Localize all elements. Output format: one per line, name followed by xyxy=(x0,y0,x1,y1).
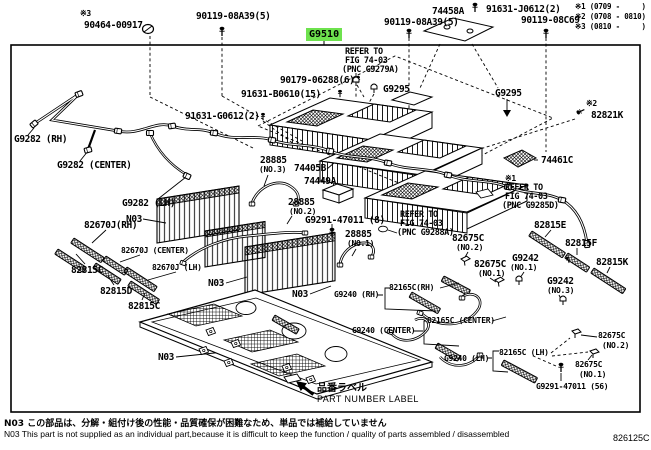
part-82815f[interactable]: 82815F xyxy=(565,238,597,249)
ref2-mark: ※2 xyxy=(586,99,597,108)
note-n03-4: N03 xyxy=(158,352,174,363)
part-90179-06288[interactable]: 90179-06288(6) xyxy=(280,75,354,86)
note-n03-1: N03 xyxy=(126,214,142,225)
part-g9291-47011-56[interactable]: G9291-47011 (56) xyxy=(536,382,608,391)
part-82670j-center[interactable]: 82670J (CENTER) xyxy=(121,246,189,255)
ref3-mark-top: ※3 xyxy=(80,9,91,18)
refer-g9285d-3: (PNC G9285D) xyxy=(502,201,559,211)
part-82675c-no2-lower[interactable]: 82675C xyxy=(598,331,625,340)
part-74458a[interactable]: 74458A xyxy=(432,6,464,17)
part-91631-j0612[interactable]: 91631-J0612(2) xyxy=(486,4,560,15)
callout-layer: ※390464-0091790119-08A39(5)74458A91631-J… xyxy=(0,0,651,450)
part-82815c-2[interactable]: 82815C xyxy=(128,301,160,312)
part-82815c-1[interactable]: 82815C xyxy=(71,265,103,276)
part-g9295-left[interactable]: G9295 xyxy=(383,84,410,95)
part-g9240-center[interactable]: G9240 (CENTER) xyxy=(352,326,415,335)
part-74449a[interactable]: 74449A xyxy=(304,176,336,187)
part-g9242-no1-sub[interactable]: (NO.1) xyxy=(510,263,537,272)
part-82165c-center[interactable]: 82165C (CENTER) xyxy=(427,316,495,325)
note-n03-2: N03 xyxy=(208,278,224,289)
part-91631-g0612[interactable]: 91631-G0612(2) xyxy=(185,111,259,122)
part-82815d[interactable]: 82815D xyxy=(100,286,132,297)
part-28885-no3-sub[interactable]: (NO.3) xyxy=(259,165,286,174)
part-90119-08a39-mid[interactable]: 90119-08A39(5) xyxy=(384,17,458,28)
part-82675c-no2-lower-sub[interactable]: (NO.2) xyxy=(602,341,629,350)
part-90464-00917[interactable]: 90464-00917 xyxy=(84,20,143,31)
part-82670j-lh[interactable]: 82670J (LH) xyxy=(152,263,202,272)
part-82675c-no1-lower-sub[interactable]: (NO.1) xyxy=(579,370,606,379)
note-n03-3: N03 xyxy=(292,289,308,300)
refer-g9288a-3: (PNC G9288A) xyxy=(397,228,454,238)
part-g9240-rh[interactable]: G9240 (RH) xyxy=(334,290,379,299)
refer-g9279a-3: (PNC G9279A) xyxy=(342,65,399,75)
part-82815e[interactable]: 82815E xyxy=(534,220,566,231)
part-90119-08c69[interactable]: 90119-08C69 xyxy=(521,15,580,26)
part-g9291-47011-8[interactable]: G9291-47011 (8) xyxy=(305,215,385,226)
part-g9240-lh[interactable]: G9240 (LH) xyxy=(444,354,489,363)
part-82165c-lh[interactable]: 82165C (LH) xyxy=(499,348,549,357)
part-g9295-right[interactable]: G9295 xyxy=(495,88,522,99)
part-82675c-no1-upper-sub[interactable]: (NO.1) xyxy=(478,269,505,278)
ref1-mark: ※1 xyxy=(505,174,516,183)
part-74405b[interactable]: 74405B xyxy=(294,163,326,174)
parts-diagram-page: ※1 (0709 - ) ※2 (0708 - 0810) ※3 (0810 -… xyxy=(0,0,651,450)
part-28885-no1-sub[interactable]: (NO.1) xyxy=(347,239,374,248)
part-82821k[interactable]: 82821K xyxy=(591,110,623,121)
part-91631-b0610[interactable]: 91631-B0610(15) xyxy=(241,89,321,100)
part-82675c-no2-upper-sub[interactable]: (NO.2) xyxy=(456,243,483,252)
part-82165c-rh[interactable]: 82165C(RH) xyxy=(389,283,434,292)
part-g9282-center[interactable]: G9282 (CENTER) xyxy=(57,160,131,171)
part-g9242-no3-sub[interactable]: (NO.3) xyxy=(547,286,574,295)
part-g9282-rh[interactable]: G9282 (RH) xyxy=(14,134,67,145)
part-82675c-no1-lower[interactable]: 82675C xyxy=(575,360,602,369)
part-90119-08a39-left[interactable]: 90119-08A39(5) xyxy=(196,11,270,22)
part-g9282-lh[interactable]: G9282 (LH) xyxy=(122,198,175,209)
part-82815k[interactable]: 82815K xyxy=(596,257,628,268)
part-74461c[interactable]: 74461C xyxy=(541,155,573,166)
